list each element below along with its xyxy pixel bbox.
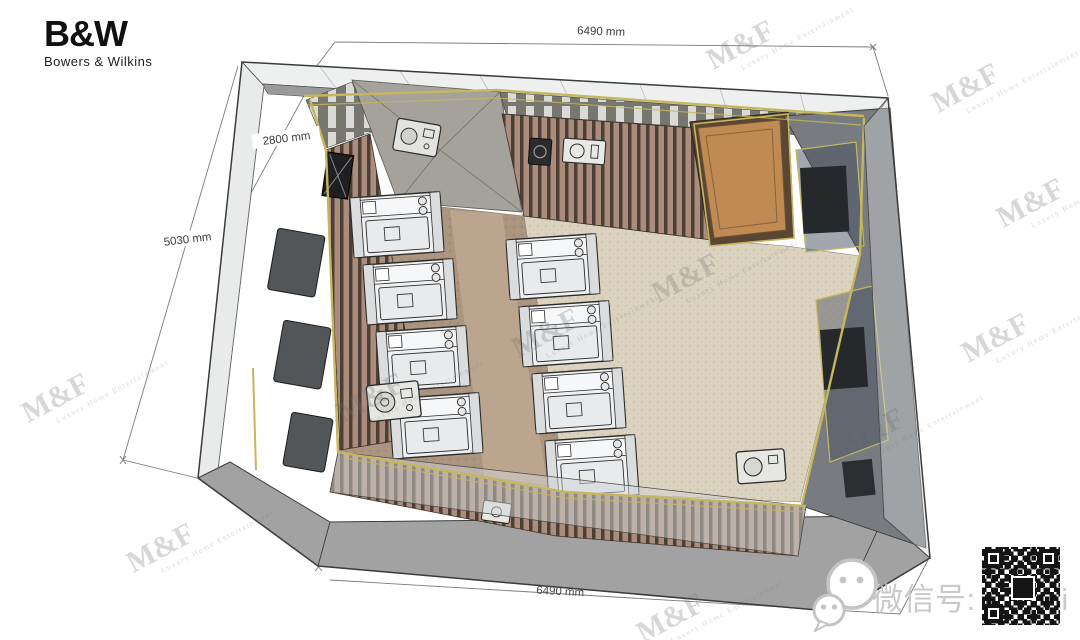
- wall-control-panel: [528, 138, 552, 165]
- wall-speaker-unit: [562, 138, 606, 165]
- ceiling-projector: [392, 118, 441, 157]
- seat: [532, 368, 626, 434]
- seat: [376, 326, 470, 392]
- qr-finder-icon: [1039, 549, 1058, 568]
- room-3d-model: 6490 mm 2800 mm 5030 mm 6490 mm: [0, 0, 1080, 640]
- qr-finder-icon: [984, 549, 1003, 568]
- seat: [506, 234, 600, 300]
- seat-equipment-unit: [366, 381, 421, 422]
- qr-finder-icon: [984, 604, 1003, 623]
- surround-speakers-left: [267, 228, 333, 472]
- brand-logo-name: Bowers & Wilkins: [44, 55, 152, 68]
- seat: [519, 301, 613, 367]
- dimension-label-top: 6490 mm: [577, 25, 625, 39]
- brand-logo-mark: B&W: [44, 16, 152, 52]
- seat: [363, 259, 457, 325]
- seat: [350, 192, 444, 258]
- dimension-label-bottom: 6490 mm: [536, 585, 584, 599]
- brand-logo: B&W Bowers & Wilkins: [44, 16, 152, 68]
- qr-center-logo: [1011, 576, 1035, 600]
- qr-code: [982, 547, 1060, 625]
- seat-equipment-unit: [736, 449, 786, 484]
- render-canvas: 6490 mm 2800 mm 5030 mm 6490 mm B&W Bowe…: [0, 0, 1080, 640]
